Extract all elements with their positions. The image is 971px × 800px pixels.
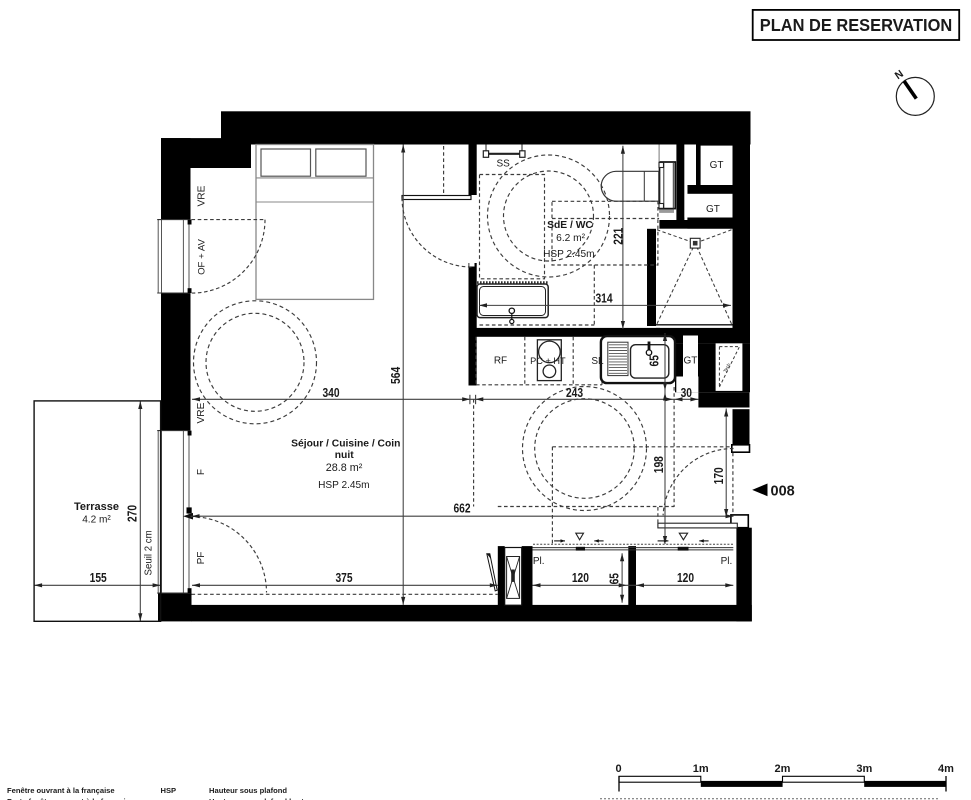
svg-text:198: 198 xyxy=(653,456,666,473)
svg-text:VRE: VRE xyxy=(197,185,208,206)
svg-text:0: 0 xyxy=(615,763,621,775)
svg-text:3m: 3m xyxy=(856,763,872,775)
svg-text:008: 008 xyxy=(771,483,795,499)
svg-text:30: 30 xyxy=(681,387,692,400)
svg-text:Pl.: Pl. xyxy=(721,556,733,567)
svg-text:Seuil 2 cm: Seuil 2 cm xyxy=(144,530,155,575)
svg-text:SL: SL xyxy=(591,356,604,367)
svg-text:28.8 m²: 28.8 m² xyxy=(326,462,363,474)
svg-text:4m: 4m xyxy=(938,763,954,775)
svg-text:340: 340 xyxy=(322,387,339,400)
svg-text:375: 375 xyxy=(335,572,353,585)
svg-text:VRE: VRE xyxy=(196,402,207,423)
svg-text:4.2 m²: 4.2 m² xyxy=(82,515,111,526)
svg-text:270: 270 xyxy=(127,505,140,522)
svg-text:Pl.: Pl. xyxy=(533,556,545,567)
svg-text:221: 221 xyxy=(613,227,626,245)
svg-text:RF: RF xyxy=(494,355,507,366)
svg-text:662: 662 xyxy=(453,502,470,515)
svg-text:SS: SS xyxy=(497,159,511,170)
svg-text:564: 564 xyxy=(390,366,403,384)
svg-text:Séjour / Cuisine / Coin: Séjour / Cuisine / Coin xyxy=(291,438,400,449)
svg-text:Fenêtre ouvrant à la française: Fenêtre ouvrant à la française xyxy=(7,786,115,795)
svg-text:243: 243 xyxy=(566,387,583,400)
svg-text:HSP 2.45m: HSP 2.45m xyxy=(318,480,369,491)
svg-text:155: 155 xyxy=(90,572,108,585)
svg-text:65: 65 xyxy=(609,572,622,584)
svg-text:65: 65 xyxy=(649,355,662,367)
svg-text:F: F xyxy=(196,469,207,475)
svg-text:Hauteur sous plafond: Hauteur sous plafond xyxy=(209,786,287,795)
svg-text:GT: GT xyxy=(710,160,724,171)
svg-text:PC + HT: PC + HT xyxy=(530,356,566,366)
svg-text:Terrasse: Terrasse xyxy=(74,501,119,513)
svg-text:nuit: nuit xyxy=(335,450,354,461)
svg-text:2m: 2m xyxy=(775,763,791,775)
svg-text:HSP 2.45m: HSP 2.45m xyxy=(543,249,594,260)
svg-text:SdE / WC: SdE / WC xyxy=(547,220,593,231)
svg-text:PF: PF xyxy=(196,552,207,565)
svg-text:GT: GT xyxy=(706,204,720,215)
svg-text:1m: 1m xyxy=(693,763,709,775)
svg-text:120: 120 xyxy=(677,572,694,585)
svg-text:HSP: HSP xyxy=(161,786,177,795)
svg-text:314: 314 xyxy=(595,292,613,305)
svg-text:170: 170 xyxy=(713,467,726,484)
svg-text:PLAN DE RESERVATION: PLAN DE RESERVATION xyxy=(760,14,952,35)
svg-text:GT: GT xyxy=(683,355,697,366)
svg-text:6.2 m²: 6.2 m² xyxy=(556,233,585,244)
svg-text:OF + AV: OF + AV xyxy=(197,238,208,274)
svg-text:120: 120 xyxy=(572,572,589,585)
